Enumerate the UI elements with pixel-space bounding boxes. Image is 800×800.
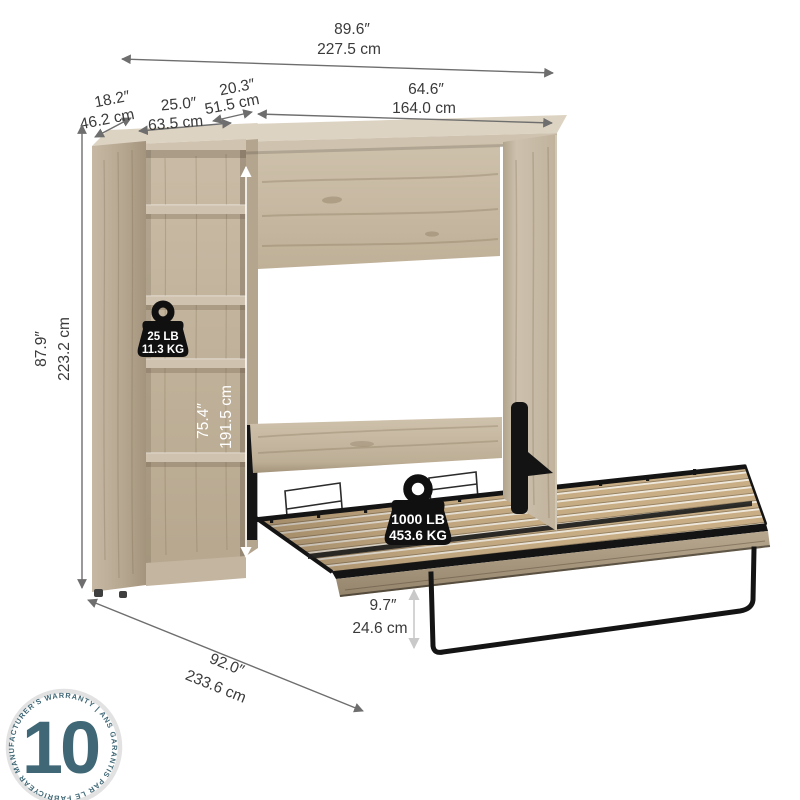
- bookcase-foot: [119, 591, 127, 598]
- dim-bed-floor-clearance: 9.7″ 24.6 cm: [352, 590, 414, 648]
- diagram-canvas: 25 LB 11.3 KG 1000 LB 453.6 KG 89.6″ 227…: [0, 0, 800, 800]
- shelf-capacity-lb: 25 LB: [147, 331, 178, 343]
- bookcase-illustration: [92, 123, 258, 598]
- dim-bed-floor-clearance-in: 9.7″: [369, 597, 397, 614]
- shelf-capacity-kg: 11.3 KG: [142, 344, 184, 356]
- warranty-years: 10: [22, 706, 99, 789]
- dim-cabinet-width-in: 64.6″: [408, 81, 444, 98]
- bed-capacity-kg: 453.6 KG: [389, 528, 447, 543]
- bed-lift-piston: [511, 402, 528, 514]
- dim-bed-floor-clearance-cm: 24.6 cm: [352, 620, 407, 637]
- weight-icon: [408, 479, 429, 500]
- bed-face-panel: [250, 417, 502, 473]
- product-dimension-diagram: 25 LB 11.3 KG 1000 LB 453.6 KG 89.6″ 227…: [0, 0, 800, 800]
- dim-cabinet-top-depth-cm: 51.5 cm: [203, 91, 260, 118]
- dim-bookcase-width-in: 25.0″: [160, 94, 198, 114]
- dim-wall-to-foot-depth-in: 92.0″: [207, 650, 247, 679]
- dim-overall-height-cm: 223.2 cm: [56, 317, 73, 381]
- dim-interior-height-in: 75.4″: [195, 403, 212, 439]
- dim-overall-height: 87.9″ 223.2 cm: [33, 125, 82, 588]
- dim-wall-to-foot-depth: 92.0″ 233.6 cm: [88, 600, 363, 711]
- cabinet-right-panel: [503, 134, 557, 531]
- dim-overall-width-cm: 227.5 cm: [317, 41, 381, 58]
- bookcase-foot: [94, 589, 103, 597]
- dim-cabinet-top-depth: 20.3″ 51.5 cm: [203, 76, 260, 121]
- dim-cabinet-width-cm: 164.0 cm: [392, 100, 456, 117]
- dim-overall-width: 89.6″ 227.5 cm: [122, 21, 553, 73]
- bed-capacity-lb: 1000 LB: [391, 511, 445, 527]
- dim-interior-height-cm: 191.5 cm: [218, 385, 235, 449]
- dim-overall-width-in: 89.6″: [334, 21, 370, 38]
- dim-overall-height-in: 87.9″: [33, 331, 50, 367]
- cabinet-header-panel: [258, 143, 500, 269]
